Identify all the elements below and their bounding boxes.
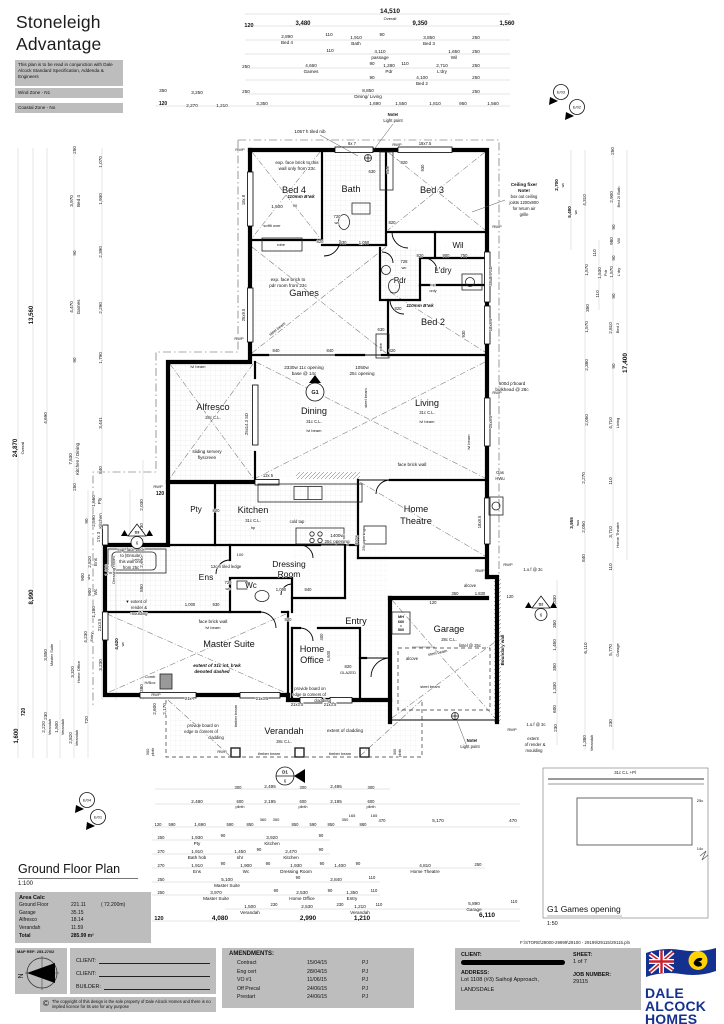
page-title: Stoneleigh Advantage (16, 12, 101, 56)
plan-label: 2,700 (554, 179, 559, 191)
plan-label: 2,900 (609, 191, 614, 203)
plan-label: joists 1200x900 (508, 200, 539, 205)
room-label: Home (300, 644, 325, 654)
room-label: Wc (245, 581, 257, 590)
plan-label: 2,220 (41, 721, 46, 733)
plan-label: 1,280 (383, 63, 395, 68)
plan-label: 850w (354, 534, 359, 545)
plan-label: 300 (300, 785, 308, 790)
plan-label: 24,870 (13, 438, 19, 457)
plan-label: 4,620 (114, 638, 119, 650)
plan-label: Pty (97, 497, 102, 504)
plan-label: Master Suite (203, 896, 229, 901)
plan-label: Verandah (61, 719, 65, 735)
plan-label: RWP (492, 224, 502, 229)
plan-label: Boundary wall (500, 635, 505, 666)
plan-label: robe (277, 242, 286, 247)
plan-label: 18x7.5 (419, 141, 432, 146)
plan-label: plinth (298, 805, 307, 809)
plan-label: 720 (84, 716, 89, 724)
plan-label: 300 (393, 749, 397, 755)
file-path: F:\STORE\29000-29999\29100 - 29199\29115… (430, 940, 720, 945)
room-label: Dressing (272, 559, 306, 569)
room-label: Verandah (264, 726, 303, 736)
plan-label: 590 (169, 822, 177, 827)
plan-label: 2,710 (436, 63, 448, 68)
plan-label: 90 (379, 32, 385, 37)
sheet-number: 1 of 7 (573, 959, 635, 966)
plan-label: 14,510 (380, 8, 400, 15)
plan-label: Note! (388, 112, 399, 117)
plan-label: 850 (247, 822, 255, 827)
room-label: Wil (452, 241, 463, 250)
plan-label: 110 (371, 888, 378, 893)
plan-label: 3,850 (423, 35, 435, 40)
plan-label: 90 (369, 61, 375, 66)
plan-label: 350 (273, 817, 280, 822)
plan-label: steel beam (420, 684, 440, 689)
plan-label: 250 (475, 862, 483, 867)
amendments-box: AMENDMENTS: Contract15/04/15PJEng cert28… (222, 948, 414, 1008)
room-label: Room (278, 569, 301, 579)
plan-label: 2,170 (162, 703, 167, 715)
plan-label: 3,480 (295, 21, 311, 27)
plan-label: 1,600 (326, 650, 331, 661)
plan-label: 4,690 (43, 412, 48, 424)
plan-label: Light point (383, 118, 403, 123)
plan-label: 850 (139, 584, 144, 592)
plan-label: from 25c (123, 565, 139, 570)
plan-label: 110mm B'wk (406, 303, 434, 308)
plan-label: 600 (368, 799, 376, 804)
room-label: Bath (342, 184, 361, 194)
plan-label: Bath hob (188, 855, 207, 860)
plan-label: 350 (552, 620, 557, 628)
plan-label: 900 (443, 253, 451, 258)
plan-label: top (430, 282, 436, 287)
plan-label: 120 (155, 822, 163, 827)
plan-label: 2,030 (139, 499, 144, 511)
plan-label: 1,930 (191, 835, 203, 840)
plan-label: Note! (518, 188, 530, 193)
plan-label: 25x8.5 (488, 415, 493, 428)
plan-label: 90 (356, 861, 361, 866)
room-label: Living (415, 398, 439, 408)
amendment-row: VO #111/06/15PJ (229, 976, 407, 985)
plan-label: wc (402, 265, 407, 270)
plan-label: Bed 2 (416, 81, 428, 86)
plan-label: 2,590 (91, 515, 96, 527)
plan-label: 590 (310, 822, 318, 827)
plan-symbol-d1: D16 (276, 767, 305, 785)
plan-label: 900 (80, 573, 85, 581)
plan-label: 600 (237, 799, 245, 804)
address-line1: Lot 1108 (#3) Saihoji Approach, (461, 977, 573, 984)
symbol-label: D2 (539, 603, 544, 607)
plan-label: 230 (271, 902, 279, 907)
plan-label: 3,970 (69, 195, 74, 207)
address-line2: LANDSDALE (461, 987, 573, 994)
plan-label: GLAZED (340, 670, 356, 675)
plan-label: 6,110 (479, 912, 495, 919)
plan-label: 820 (345, 664, 353, 669)
plan-label: 3,710 (608, 526, 613, 538)
plan-label: RWP (507, 727, 517, 732)
plan-label: 250 (242, 64, 250, 69)
plan-label: 250 (158, 877, 166, 882)
plan-symbol-e04: E/04 (75, 793, 95, 814)
plan-label: robe (378, 342, 383, 351)
plan-label: 2,820 (68, 732, 73, 744)
plan-label: 90 (319, 847, 324, 852)
g1-detail (543, 768, 708, 918)
plan-label: 120 (159, 101, 168, 107)
plan-label: 900 (87, 588, 92, 596)
plan-label: 2,050 (584, 414, 589, 426)
plan-label: Comb (145, 674, 156, 679)
room-label: Theatre (400, 516, 432, 526)
wind-zone-note: Wind Zone - N1 (15, 88, 123, 98)
plan-label: 930 (461, 330, 466, 338)
plan-label: 840 (98, 466, 103, 474)
plan-label: 250 (472, 63, 480, 68)
plan-label: 1,500 (244, 904, 256, 909)
plan-label: 120 (156, 491, 165, 497)
room-label: L'dry (434, 266, 451, 275)
plan-label: 18x 8 (241, 194, 246, 205)
plan-label: 4,100 (416, 75, 428, 80)
plan-label: 90 (296, 875, 301, 880)
plan-label: 17x 3 (96, 531, 101, 542)
plan-label: 21x3.5 (256, 696, 269, 701)
plan-label: 820 (389, 348, 397, 353)
plan-label: alcove (406, 656, 419, 661)
plan-label: 110 (592, 249, 597, 257)
plan-label: Pdr (385, 69, 393, 74)
plan-label: plinth (398, 749, 402, 757)
plan-symbol-e03: E/03 (549, 85, 569, 106)
plan-label: Living (615, 418, 620, 428)
plan-label: Master Suite (214, 883, 240, 888)
plan-label: wc (121, 642, 125, 647)
plan-label: 1.o.f @ 3c (523, 567, 542, 572)
plan-label: RWP (234, 336, 244, 341)
plan-label: 8,990 (29, 589, 35, 605)
amendment-row: Eng cert28/04/15PJ (229, 968, 407, 977)
plan-label: 1,210 (354, 915, 371, 922)
plan-label: 2,290 (98, 302, 103, 314)
plan-label: wc (335, 220, 340, 225)
plan-label: 590 (227, 822, 235, 827)
plan-label: 3,920 (266, 835, 278, 840)
area-calc-total: Total 285.99 m² (19, 932, 147, 940)
plan-label: 9,350 (412, 21, 428, 27)
plan-label: timber beam (258, 751, 281, 756)
face-brick-hatch (296, 472, 360, 479)
map-ref-box: MAP REF: 253-27/02 N (15, 948, 67, 994)
plan-label: 2,270 (186, 103, 198, 108)
plan-label: 720 (334, 214, 342, 219)
conjunction-note: This plan is to be read in conjunction w… (15, 60, 123, 86)
plan-label: timber beam (233, 704, 238, 727)
plan-label: 1,570 (584, 321, 589, 333)
plan-label: lvl beam (420, 419, 436, 424)
plan-label: 720 (21, 708, 27, 717)
coastal-zone-note: Coastal Zone - No (15, 103, 123, 113)
client-name-redacted (461, 960, 565, 965)
plan-label: shr (86, 574, 91, 580)
plan-label: 3,955 (569, 517, 574, 529)
plan-label: 600 (552, 705, 557, 713)
plan-label: 31c C.L +Pl (614, 770, 636, 775)
plan-label: 840 (581, 554, 586, 562)
signoff-row: CLIENT: (76, 951, 210, 964)
plan-label: Dressing Room (111, 556, 116, 584)
plan-label: 28c C.L. (441, 637, 457, 642)
plan-label: 230 (553, 724, 558, 732)
plan-label: 12x 5 (263, 473, 274, 478)
plan-label: 950 (459, 101, 467, 106)
plan-label: Kitchen (98, 513, 103, 529)
plan-label: lintel @ 25c (459, 643, 481, 648)
amendment-row: Contract15/04/15PJ (229, 959, 407, 968)
plan-label: edge to corners of (184, 729, 219, 734)
plan-label: 31c C.L. (419, 410, 435, 415)
plan-label: 110 (369, 875, 376, 880)
plan-label: Dining/ Living (354, 94, 382, 99)
plan-label: 1,500 (54, 721, 59, 733)
plan-label: 840 (273, 348, 281, 353)
plan-label: Overall (384, 16, 397, 21)
area-calc-row: Garage35.15 (19, 910, 147, 918)
plan-label: 7,530 (68, 453, 73, 465)
plan-label: Light point (460, 744, 480, 749)
plan-label: render & (131, 605, 147, 610)
plan-label: 90 (266, 861, 271, 866)
plan-label: robe (385, 165, 390, 174)
plan-label: 31c C.L. (245, 518, 261, 523)
plan-label: hwu (576, 520, 580, 526)
room-label: Bed 4 (282, 185, 306, 195)
plan-label: Verandah (48, 719, 52, 735)
plan-label: 850 (328, 822, 336, 827)
plan-label: 820 (213, 508, 221, 513)
plan-label: 400 (319, 633, 324, 641)
plan-label: 110 (376, 902, 383, 907)
plan-label: Bed 3 (423, 41, 435, 46)
plan-label: 1,210 (216, 103, 228, 108)
plan-label: Games (304, 69, 320, 74)
room-label: Pty (190, 505, 202, 514)
plan-label: 90 (611, 293, 616, 299)
plan-label: extent of cladding (327, 728, 363, 733)
plan-label: 350 (585, 304, 590, 312)
plan-label: 820 (401, 160, 409, 165)
plan-label: 90 (611, 224, 616, 230)
symbol-label: E/02 (573, 105, 582, 110)
area-calc-row: Verandah11.59 (19, 925, 147, 933)
plan-label: 3,230 (98, 659, 103, 671)
plan-label: 1,650 (448, 49, 460, 54)
plan-label: hp (251, 525, 256, 530)
plan-label: 21x 7 (185, 696, 196, 701)
room-label: Pdr (394, 276, 407, 285)
plan-label: 25c opening (324, 539, 349, 544)
plan-label: 21x3.5 (291, 702, 304, 707)
plan-label: to (Ensuite) (120, 553, 142, 558)
plan-label: 300 (368, 785, 376, 790)
plan-label: 1,500 (271, 204, 283, 209)
plan-label: 90 (257, 847, 262, 852)
copyright-icon: © (43, 999, 49, 1009)
room-label: Bed 2 (421, 317, 445, 327)
plan-label: Home Theatre (410, 869, 440, 874)
plan-label: Ens (93, 557, 98, 566)
plan-label: 630 (340, 240, 348, 245)
plan-label: 230 (43, 712, 48, 720)
svg-text:N: N (18, 973, 25, 978)
amendment-row: Prestart24/06/15PJ (229, 993, 407, 1002)
plan-label: 1,000 (185, 602, 196, 607)
room-label: Office (300, 655, 324, 665)
plan-label: 25x14.3 SD (244, 413, 249, 435)
plan-label: 1,400 (334, 863, 346, 868)
logo-line3: HOMES (645, 1013, 721, 1024)
plan-label: wc (226, 586, 231, 591)
plan-label: 1057 h tiled nib (294, 129, 326, 134)
plan-label: 300 (145, 748, 150, 755)
plan-label: 2,195 (330, 799, 342, 804)
plan-label: 1,090 (276, 587, 287, 592)
plan-label: box out ceiling (511, 194, 538, 199)
plan-label: 360 (260, 817, 267, 822)
plan-label: 25c opening (349, 371, 374, 376)
room-label: Master Suite (203, 639, 255, 649)
plan-label: 1,530 (597, 267, 602, 279)
symbol-label: D1 (282, 770, 288, 775)
plan-label: RWP (153, 484, 163, 489)
plan-label: 90 (320, 861, 325, 866)
plan-label: face brick wall (199, 619, 228, 624)
plan-label: 1050w (355, 365, 369, 370)
plan-label: provide board on (294, 686, 326, 691)
plan-label: only (429, 288, 436, 293)
plan-label: 820 (389, 220, 397, 225)
plan-symbol-e02: E/02 (565, 100, 585, 121)
plan-label: 880 (360, 822, 368, 827)
plan-label: 4,230 (83, 631, 88, 643)
plan-label: for return air (513, 206, 536, 211)
title-block: CLIENT: ADDRESS: Lot 1108 (#3) Saihoji A… (455, 948, 641, 1010)
plan-label: alcove (464, 583, 477, 588)
plan-label: sliding servery (192, 449, 222, 454)
plan-label: 28c C.L. (205, 415, 221, 420)
plan-label: lvl beam (206, 625, 222, 630)
copyright-text: The copyright of this design is the sole… (52, 999, 213, 1010)
plan-label: 3,350 (256, 101, 268, 106)
plan-label: 250 (158, 890, 166, 895)
plan-label: plinth (366, 805, 375, 809)
plan-label: 2,270 (581, 472, 586, 484)
plan-label: 850 (292, 822, 300, 827)
plan-label: H/Box (145, 680, 156, 685)
plan-label: 1,550 (395, 101, 407, 106)
room-label: Dining (301, 406, 327, 416)
plan-label: 3,441 (98, 417, 103, 429)
plan-label: extent of 31c int. b'wk (193, 663, 241, 668)
plan-label: Ceiling fixer (511, 182, 538, 187)
plan-label: 90 (84, 518, 89, 524)
plan-label: 110 (608, 563, 613, 571)
plan-title: Ground Floor Plan (18, 862, 138, 879)
plan-label: 28c C.L. (276, 739, 292, 744)
plan-label: 6x 7 (348, 141, 357, 146)
plan-label: 1,600 (14, 728, 20, 744)
room-label: Garage (434, 624, 465, 634)
plan-label: 110 (401, 61, 409, 66)
plan-label: Dressing Room (280, 869, 312, 874)
plan-label: Kitchen (283, 855, 299, 860)
plan-label: soffit over (263, 223, 281, 228)
plan-label: 1,380 (582, 735, 587, 747)
plan-label: 2,840 (330, 877, 342, 882)
plan-label: 25c opening (361, 529, 366, 551)
plan-label: 1,560 (487, 101, 499, 106)
plan-label: 250 (72, 483, 77, 491)
plan-label: 31c C.L. (306, 419, 322, 424)
plan-label: 270 (158, 863, 166, 868)
room-label: Kitchen (238, 505, 269, 515)
plan-label: RWP (217, 749, 227, 754)
plan-label: base @ 14c (292, 371, 317, 376)
wa-flag-icon (645, 946, 717, 982)
plan-label: 250 (472, 75, 480, 80)
plan-label: 4,810 (419, 863, 431, 868)
plan-label: 3,320 (70, 666, 75, 678)
plan-label: 250 (72, 146, 77, 154)
plan-label: 100 (237, 552, 244, 557)
drawing-sheet: 14,510Overall9,3501203,4801,5602,890Bed … (0, 0, 724, 1024)
plan-label: 1,910 (350, 35, 362, 40)
plan-label: 4,310 (582, 194, 587, 206)
room-label: Home (404, 504, 429, 514)
plan-label: 840 (327, 348, 335, 353)
plan-label: 250 (472, 49, 480, 54)
plan-label: 2330w 11c opening (284, 365, 324, 370)
plan-label: 21x3.5 (324, 702, 337, 707)
plan-label: grille (520, 212, 530, 217)
plan-label: 1.o.f @ 3c (526, 722, 545, 727)
plan-label: 820 (417, 253, 425, 258)
plan-label: edge to corners of (292, 692, 327, 697)
plan-label: 25x9.5 (241, 308, 246, 321)
plan-label: Entry (347, 896, 358, 901)
plan-label: provide board on (187, 723, 219, 728)
plan-label: 270 (158, 849, 166, 854)
plan-label: 350 (159, 88, 167, 93)
plan-label: 1,570 (584, 264, 589, 276)
plan-label: 90 (274, 888, 279, 893)
plan-label: Home Office (76, 660, 81, 683)
job-number-label: JOB NUMBER: (573, 972, 635, 978)
plan-label: 1,070 (98, 156, 103, 168)
plan-label: 840 (305, 587, 313, 592)
plan-label: 120 (430, 600, 438, 605)
plan-label: 1,800 (104, 564, 109, 576)
symbol-label: G1 (311, 390, 318, 396)
plan-label: 1,350 (346, 890, 358, 895)
plan-label: 110 (608, 477, 613, 485)
